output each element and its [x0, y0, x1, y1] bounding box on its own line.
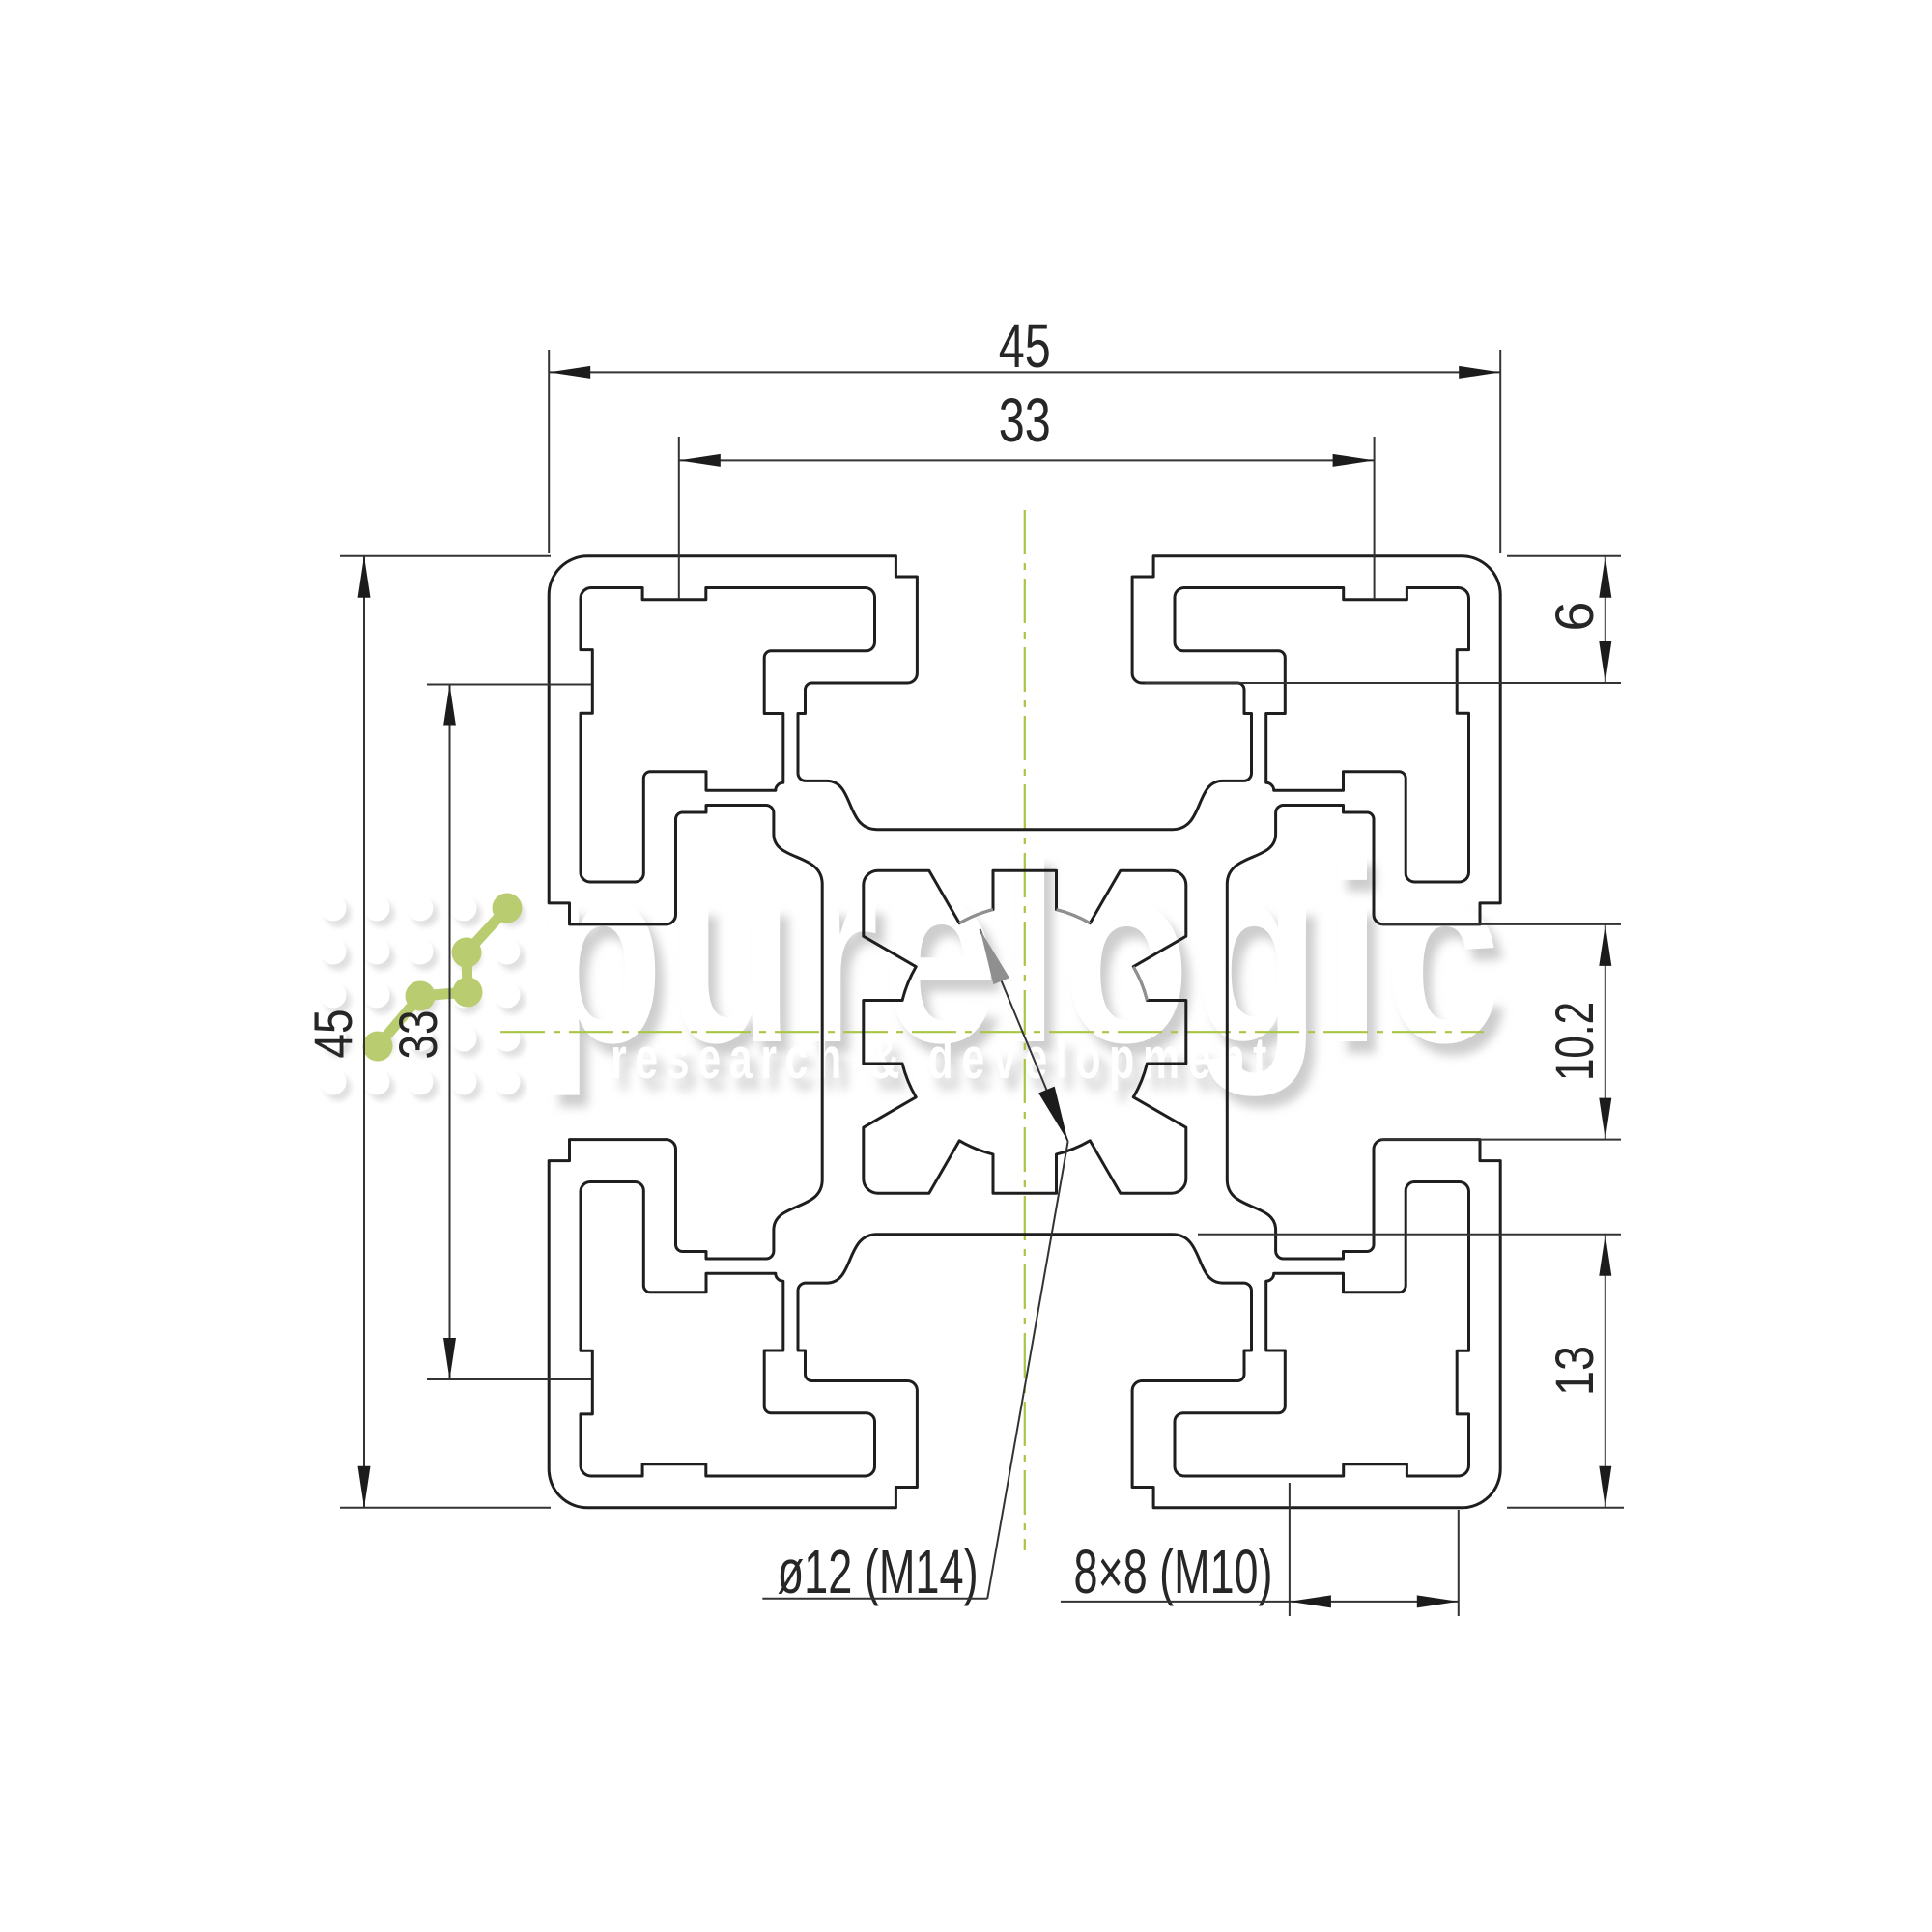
svg-text:45: 45: [302, 1009, 363, 1059]
svg-text:research & development: research & development: [611, 1026, 1275, 1091]
svg-text:10.2: 10.2: [1544, 1002, 1605, 1081]
svg-text:ø12 (M14): ø12 (M14): [778, 1537, 979, 1606]
svg-text:8×8 (M10): 8×8 (M10): [1074, 1537, 1273, 1606]
svg-text:13: 13: [1544, 1346, 1605, 1396]
svg-text:6: 6: [1544, 601, 1605, 631]
svg-text:33: 33: [999, 385, 1051, 455]
svg-text:45: 45: [999, 311, 1051, 381]
svg-text:33: 33: [387, 1010, 448, 1060]
